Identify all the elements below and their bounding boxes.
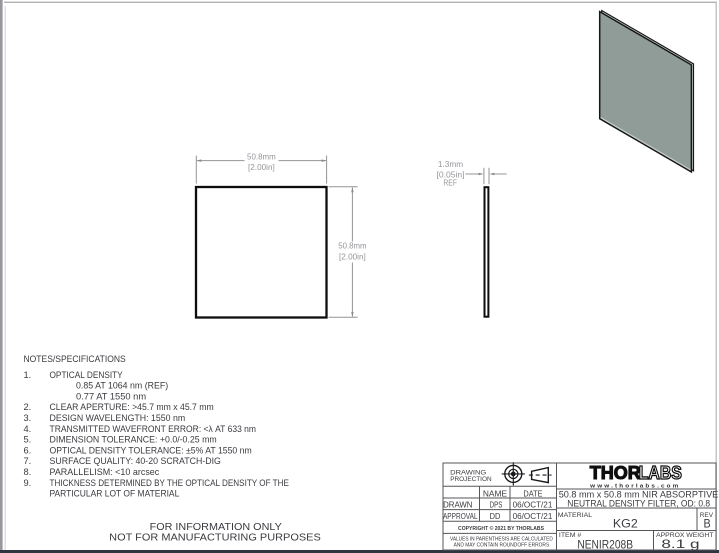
svg-text:50.8mm: 50.8mm	[247, 151, 276, 161]
svg-text:6.: 6.	[24, 445, 32, 455]
svg-text:COPYRIGHT © 2021 BY THORLABS: COPYRIGHT © 2021 BY THORLABS	[458, 525, 544, 532]
svg-text:OPTICAL DENSITY: OPTICAL DENSITY	[50, 370, 123, 380]
svg-text:LABS: LABS	[639, 463, 682, 483]
svg-text:NEUTRAL DENSITY FILTER, OD: 0.: NEUTRAL DENSITY FILTER, OD: 0.8	[567, 498, 710, 509]
svg-text:NAME: NAME	[483, 488, 508, 498]
svg-text:PARALLELISM: <10 arcsec: PARALLELISM: <10 arcsec	[50, 467, 160, 477]
svg-text:4.: 4.	[24, 424, 32, 434]
svg-text:9.: 9.	[24, 478, 32, 488]
svg-text:8.1 g: 8.1 g	[661, 537, 699, 551]
svg-text:REF: REF	[443, 177, 457, 187]
svg-text:NENIR208B: NENIR208B	[577, 538, 633, 552]
svg-text:TRANSMITTED WAVEFRONT ERROR: <: TRANSMITTED WAVEFRONT ERROR: <λ AT 633 n…	[50, 424, 257, 434]
svg-text:8.: 8.	[24, 467, 32, 477]
svg-text:KG2: KG2	[613, 517, 638, 531]
svg-text:DD: DD	[490, 511, 501, 521]
svg-text:0.77 AT 1550 nm: 0.77 AT 1550 nm	[76, 391, 146, 401]
svg-text:[2.00in]: [2.00in]	[248, 162, 275, 172]
svg-text:APPROVAL: APPROVAL	[443, 511, 478, 521]
svg-text:SURFACE QUALITY: 40-20 SCRATCH: SURFACE QUALITY: 40-20 SCRATCH-DIG	[50, 456, 221, 466]
svg-text:THICKNESS DETERMINED BY THE OP: THICKNESS DETERMINED BY THE OPTICAL DENS…	[50, 478, 289, 488]
svg-text:5.: 5.	[24, 435, 32, 445]
svg-text:7.: 7.	[24, 456, 32, 466]
svg-text:NOT FOR MANUFACTURING PURPOSES: NOT FOR MANUFACTURING PURPOSES	[109, 532, 321, 544]
svg-text:AND MAY CONTAIN ROUNDOFF ERROR: AND MAY CONTAIN ROUNDOFF ERRORS	[454, 542, 550, 548]
svg-text:2.: 2.	[24, 402, 32, 412]
svg-text:3.: 3.	[24, 413, 32, 423]
svg-text:THOR: THOR	[590, 463, 641, 483]
svg-text:DPS: DPS	[490, 500, 503, 510]
svg-text:DATE: DATE	[523, 488, 543, 498]
svg-text:DRAWN: DRAWN	[443, 500, 472, 510]
svg-text:DIMENSION TOLERANCE: +0.0/-0.2: DIMENSION TOLERANCE: +0.0/-0.25 mm	[50, 435, 217, 445]
svg-text:NOTES/SPECIFICATIONS: NOTES/SPECIFICATIONS	[24, 354, 126, 364]
svg-text:50.8mm: 50.8mm	[338, 241, 366, 251]
svg-text:1.3mm: 1.3mm	[438, 159, 463, 169]
svg-text:OPTICAL DENSITY TOLERANCE: ±5%: OPTICAL DENSITY TOLERANCE: ±5% AT 1550 n…	[50, 445, 252, 455]
svg-text:06/OCT/21: 06/OCT/21	[513, 500, 553, 510]
svg-text:B: B	[704, 517, 711, 531]
svg-text:[2.00in]: [2.00in]	[339, 252, 366, 262]
svg-text:PARTICULAR LOT OF MATERIAL: PARTICULAR LOT OF MATERIAL	[50, 489, 180, 499]
svg-text:MATERIAL: MATERIAL	[558, 512, 593, 519]
svg-text:0.85 AT 1064 nm (REF): 0.85 AT 1064 nm (REF)	[76, 381, 168, 391]
svg-text:PROJECTION: PROJECTION	[450, 476, 492, 483]
svg-text:06/OCT/21: 06/OCT/21	[513, 511, 553, 521]
svg-text:CLEAR APERTURE: >45.7 mm x 45.: CLEAR APERTURE: >45.7 mm x 45.7 mm	[50, 402, 214, 412]
svg-text:1.: 1.	[24, 370, 32, 380]
svg-text:DESIGN WAVELENGTH: 1550 nm: DESIGN WAVELENGTH: 1550 nm	[50, 413, 186, 423]
